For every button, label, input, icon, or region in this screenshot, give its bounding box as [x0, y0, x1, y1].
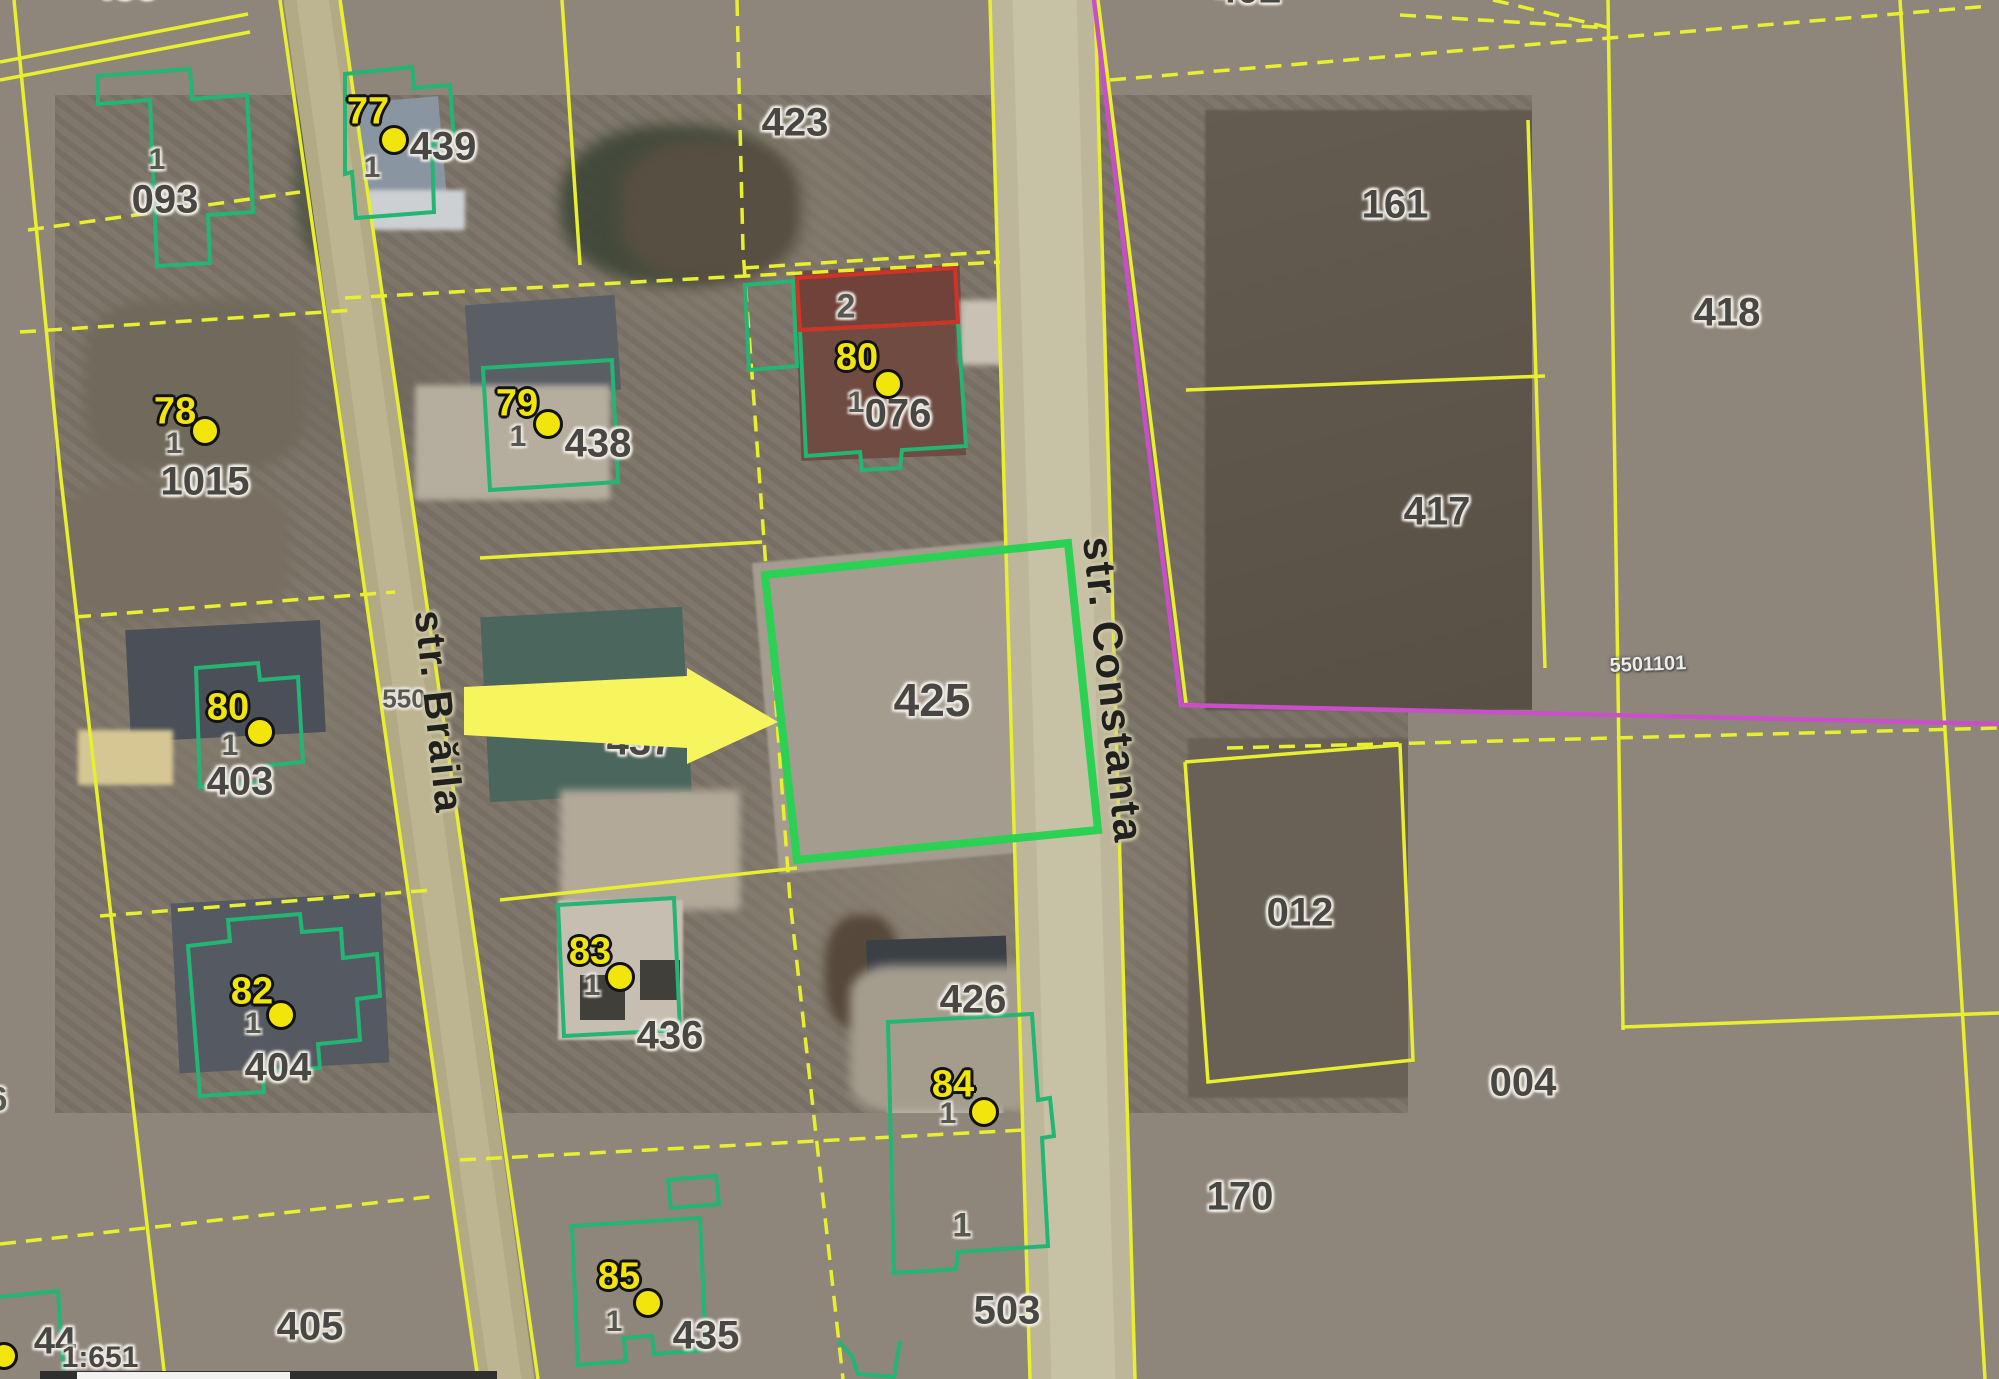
- marker-number: 85: [598, 1256, 640, 1299]
- parcel-label-405: 405: [277, 1305, 344, 1350]
- plowed-field-012: [1188, 738, 1410, 1098]
- shed-dark-square: [640, 960, 680, 1000]
- parcel-label-418: 418: [1694, 291, 1761, 336]
- parcel-label-402: 402: [1215, 0, 1282, 13]
- marker-sub-number: 1: [606, 1305, 623, 1339]
- building-outline-9: [572, 1218, 706, 1365]
- parcel-boundary-line-29: [1493, 0, 1610, 28]
- house-roof-437: [480, 607, 691, 802]
- building-outline-11: [838, 1341, 900, 1377]
- parcel-boundary-line-0: [0, 14, 248, 62]
- sub-label-1: 1: [953, 1207, 972, 1246]
- plowed-field-161-417: [1205, 110, 1535, 710]
- marker-dot-icon: [633, 1288, 663, 1318]
- dark-garden-patch: [620, 140, 800, 280]
- parcel-boundary-line-1: [0, 32, 250, 80]
- parcel-label-503: 503: [974, 1289, 1041, 1334]
- parcel-boundary-line-23: [1608, 0, 1623, 1030]
- white-patch-076: [960, 300, 1055, 365]
- parcel-425-ground: [752, 534, 1108, 874]
- patio-438: [415, 385, 610, 500]
- parcel-boundary-line-7: [0, 1196, 437, 1244]
- boundary-ref-label: 5501101: [1609, 652, 1687, 678]
- patio-437: [560, 790, 740, 910]
- parcel-boundary-line-14: [460, 1130, 1023, 1160]
- house-roof-439-white: [355, 190, 465, 230]
- parcel-label-400: 400: [92, 0, 159, 9]
- pale-ground-south: [850, 965, 1060, 1113]
- shed-dark-square: [580, 975, 625, 1020]
- parcel-boundary-line-27: [1623, 1013, 1999, 1027]
- parcel-boundary-line-24: [1900, 0, 1985, 1379]
- sub-label-6: 6: [0, 1081, 7, 1120]
- bottom-toolbar-input-sliver[interactable]: [77, 1372, 290, 1379]
- corner-marker-dot: [0, 1342, 18, 1370]
- parcel-boundary-line-28: [1400, 15, 1610, 28]
- garden-rows-1015: [85, 300, 305, 470]
- house-roof-404: [171, 893, 390, 1074]
- ground-west: [60, 480, 290, 620]
- map-canvas[interactable]: 0931015403404405435436437438439423425426…: [0, 0, 1999, 1379]
- yellow-building-403: [78, 730, 173, 785]
- parcel-boundary-line-22: [1110, 6, 1990, 80]
- house-roof-403: [125, 620, 326, 742]
- house-roof-076: [795, 265, 967, 461]
- aerial-imagery: [55, 95, 1532, 1113]
- building-outline-10: [668, 1176, 719, 1208]
- corner-label-44: 44: [34, 1321, 76, 1364]
- corner-label-1:651: 1:651: [62, 1341, 139, 1375]
- parcel-label-435: 435: [673, 1314, 740, 1359]
- bottom-toolbar-sliver[interactable]: [40, 1371, 497, 1379]
- parcel-label-170: 170: [1207, 1175, 1274, 1220]
- parcel-label-004: 004: [1490, 1061, 1557, 1106]
